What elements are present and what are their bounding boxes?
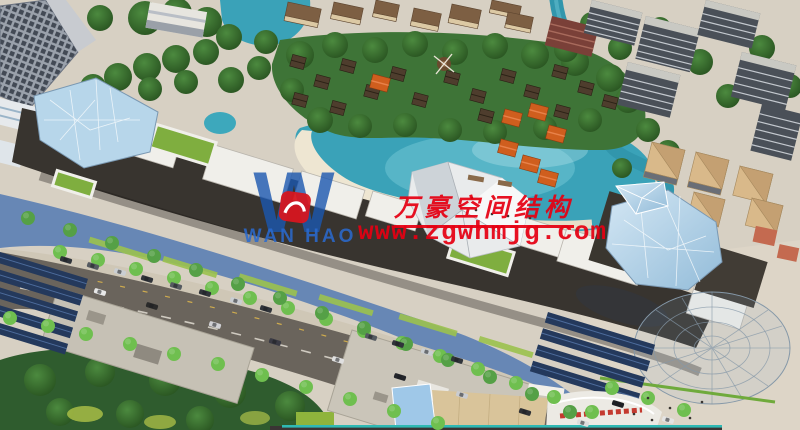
pond-small (204, 112, 236, 134)
bottom-edge-glass (282, 425, 722, 428)
lawn-strip (296, 412, 334, 426)
rendered-scene (0, 0, 800, 430)
aerial-rendering-image: W WAN HAO 万豪空间结构 www.zgwhmjg.com (0, 0, 800, 430)
